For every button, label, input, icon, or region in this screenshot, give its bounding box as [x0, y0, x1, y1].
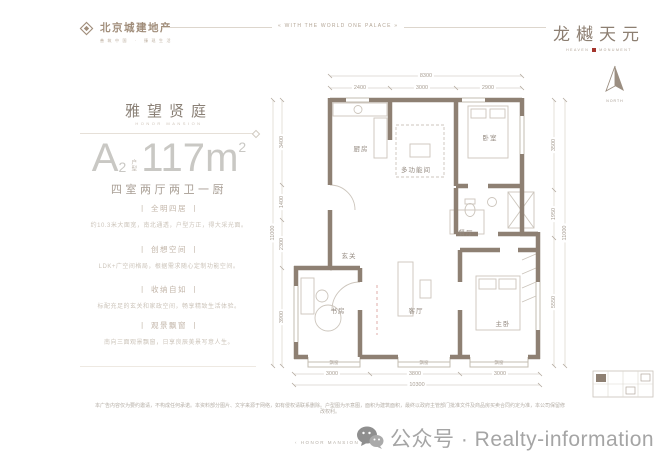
room-label-bedroom: 卧室	[483, 132, 498, 142]
key-plan-icon	[592, 370, 654, 398]
dim-top-2: 3000	[414, 85, 430, 91]
section-title: 雅望贤庭	[80, 100, 258, 121]
dim-top-1: 2400	[352, 85, 368, 91]
feature-item: 丨 创想空间 丨 LDK+广空间格局，根据需求随心定制功能空间。	[60, 244, 278, 270]
dim-bottom-3: 3000	[492, 371, 508, 377]
panel-divider-bottom	[80, 366, 256, 367]
bay-window-label: 飘窗	[495, 360, 504, 366]
unit-index: 2	[118, 156, 126, 178]
dim-left-4: 3900	[279, 309, 285, 325]
dim-right-2: 1950	[551, 206, 557, 222]
poster: 北京城建地产 善筑中国 · 臻现生活 « WITH THE WORLD ONE …	[0, 0, 660, 467]
key-plan	[592, 370, 654, 403]
project-subtitle-left: HEAVEN	[566, 48, 589, 52]
room-label-study: 书房	[331, 305, 346, 315]
dim-left-1: 3400	[279, 134, 285, 150]
room-label-foyer: 玄关	[342, 250, 357, 260]
diamond-ornament-icon	[252, 130, 260, 138]
dim-bottom-1: 3000	[324, 371, 340, 377]
north-indicator: NORTH	[602, 64, 628, 103]
disclaimer-text: 本广告内容仅为要约邀请，不构成任何承诺。本资料部分图片、文字来源于网络，如有侵权…	[95, 403, 565, 415]
project-subtitle-right: MONUMENT	[599, 48, 632, 52]
section-subtitle: HONOR MANSION	[80, 121, 258, 126]
unit-letter: A	[92, 138, 119, 178]
dim-left-total: 11000	[270, 224, 276, 243]
bay-window-label: 飘窗	[420, 360, 429, 366]
dim-right-3: 5550	[551, 294, 557, 310]
unit-area: 117	[141, 138, 205, 178]
dim-right-total: 11000	[562, 224, 568, 243]
feature-title: 丨 收纳自如 丨	[60, 284, 278, 295]
developer-logo-icon	[78, 20, 95, 42]
dim-bottom-total: 10300	[407, 382, 426, 388]
feature-desc: LDK+广空间格局，根据需求随心定制功能空间。	[60, 261, 278, 270]
room-label-living: 客厅	[409, 305, 424, 315]
dim-right-1: 3500	[551, 137, 557, 153]
project-brand: 龙樾天元 HEAVEN MONUMENT	[543, 20, 655, 52]
feature-desc: 标配充足的玄关和家政空间，畅享精致生活体验。	[60, 301, 278, 310]
developer-tagline: 善筑中国 · 臻现生活	[100, 38, 174, 44]
developer-logo: 北京城建地产 善筑中国 · 臻现生活	[78, 20, 174, 44]
unit-type-label: 户型	[129, 159, 137, 172]
feature-item: 丨 全明四居 丨 约10.3米大面宽，南北通透，户型方正，得大采光面。	[60, 203, 278, 229]
dim-top-3: 2900	[480, 85, 496, 91]
north-arrow-icon	[602, 64, 628, 94]
room-label-master: 主卧	[496, 318, 511, 328]
feature-title: 丨 全明四居 丨	[60, 203, 278, 214]
room-label-dining: 餐厅	[459, 227, 474, 237]
wechat-icon	[356, 425, 384, 451]
project-subtitle: HEAVEN MONUMENT	[543, 48, 655, 52]
feature-desc: 约10.3米大面宽，南北通透，户型方正，得大采光面。	[60, 220, 278, 229]
unit-area-unit: m	[205, 138, 238, 178]
floor-plan-drawing	[270, 70, 580, 400]
room-label-multiroom: 多功能间	[401, 164, 431, 174]
watermark-text: 公众号 · Realty-information	[390, 423, 654, 453]
feature-title: 丨 观景飘窗 丨	[60, 320, 278, 331]
bay-window-label: 飘窗	[330, 360, 339, 366]
feature-title: 丨 创想空间 丨	[60, 244, 278, 255]
feature-item: 丨 观景飘窗 丨 南向三面观景飘窗，日享良辰美景写意人生。	[60, 320, 278, 346]
unit-area-sup: 2	[238, 140, 246, 154]
dim-left-2: 1400	[279, 194, 285, 210]
room-label-kitchen: 厨房	[354, 143, 369, 153]
project-name: 龙樾天元	[543, 20, 655, 45]
panel-divider	[80, 133, 256, 134]
floor-plan: 厨房 多功能间 卧室 餐厅 玄关 书房 客厅 主卧 飘窗 飘窗 飘窗 8300 …	[270, 70, 580, 400]
unit-headline: A 2 户型 117 m 2	[80, 138, 258, 178]
brand-seal-icon	[592, 48, 596, 52]
feature-desc: 南向三面观景飘窗，日享良辰美景写意人生。	[60, 337, 278, 346]
north-label: NORTH	[602, 99, 628, 103]
dim-bottom-2: 3800	[407, 371, 423, 377]
dim-top-total: 8300	[418, 73, 434, 79]
header-banner: « WITH THE WORLD ONE PALACE »	[272, 23, 404, 29]
dim-left-3: 2300	[279, 236, 285, 252]
watermark: 公众号 · Realty-information	[356, 423, 654, 453]
unit-layout: 四室两厅两卫一厨	[80, 181, 258, 197]
feature-item: 丨 收纳自如 丨 标配充足的玄关和家政空间，畅享精致生活体验。	[60, 284, 278, 310]
